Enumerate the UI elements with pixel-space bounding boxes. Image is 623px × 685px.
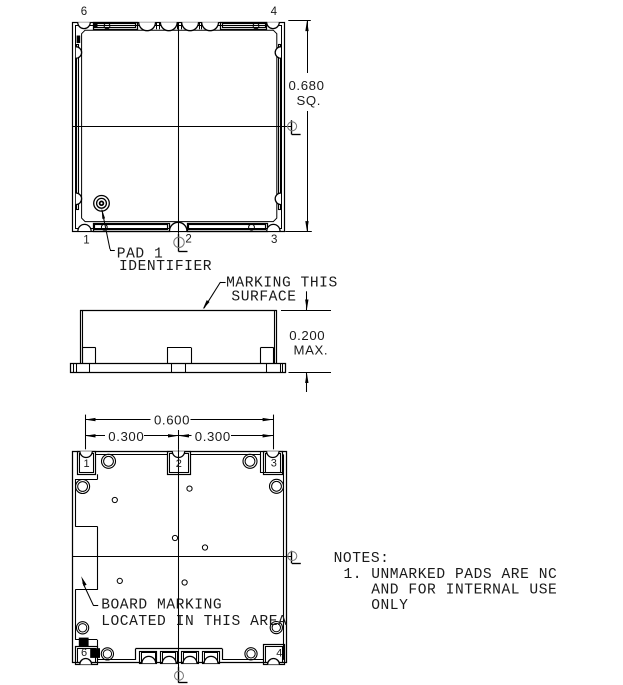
svg-text:3: 3 [271,458,277,470]
svg-text:4: 4 [276,648,282,660]
svg-text:ONLY: ONLY [371,598,408,614]
svg-text:6: 6 [81,647,87,659]
svg-text:BOARD MARKING: BOARD MARKING [101,598,222,614]
svg-text:6: 6 [81,6,87,18]
svg-text:UNMARKED PADS ARE NC: UNMARKED PADS ARE NC [371,567,557,583]
svg-text:0.680: 0.680 [289,78,325,93]
svg-text:SQ.: SQ. [297,93,322,108]
svg-text:2: 2 [176,458,182,470]
svg-text:AND FOR INTERNAL USE: AND FOR INTERNAL USE [371,582,557,598]
svg-text:NOTES:: NOTES: [334,551,390,567]
svg-text:1: 1 [83,234,89,246]
svg-text:1.: 1. [344,567,363,583]
svg-text:4: 4 [271,6,278,18]
svg-text:0.200: 0.200 [289,328,325,343]
svg-text:0.300: 0.300 [195,429,231,444]
svg-text:2: 2 [185,234,191,246]
svg-text:IDENTIFIER: IDENTIFIER [119,259,212,275]
svg-text:LOCATED IN THIS AREA: LOCATED IN THIS AREA [101,614,287,630]
svg-text:0.600: 0.600 [154,413,190,428]
svg-text:1: 1 [84,458,90,470]
svg-text:MAX.: MAX. [294,342,329,357]
svg-text:3: 3 [271,234,277,246]
svg-text:0.300: 0.300 [108,429,144,444]
svg-text:SURFACE: SURFACE [231,290,296,306]
